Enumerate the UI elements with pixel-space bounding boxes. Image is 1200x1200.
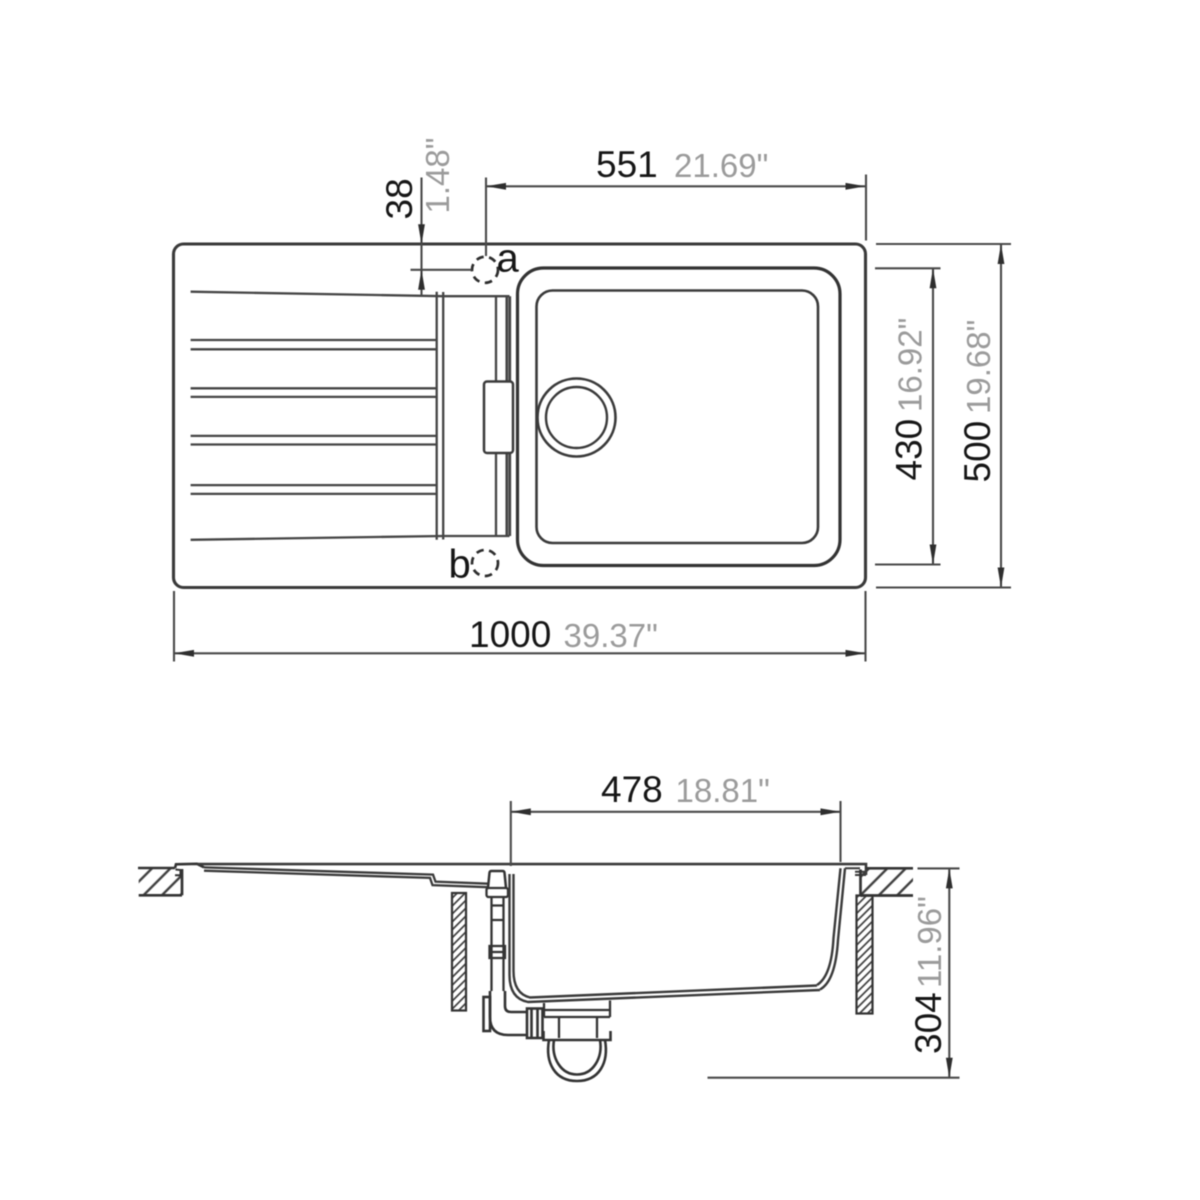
svg-text:39.37": 39.37" [564,617,658,654]
svg-text:500: 500 [957,421,998,483]
svg-text:19.68": 19.68" [960,320,997,414]
svg-text:16.92": 16.92" [892,318,929,412]
svg-text:18.81": 18.81" [676,772,770,809]
svg-text:38: 38 [379,178,420,219]
svg-text:1000: 1000 [469,614,551,655]
svg-text:a: a [497,237,520,281]
svg-text:304: 304 [908,992,949,1054]
svg-text:21.69": 21.69" [674,147,768,184]
svg-text:478: 478 [601,769,663,810]
svg-text:b: b [449,543,471,587]
svg-text:1.48": 1.48" [419,138,456,214]
svg-text:551: 551 [596,144,658,185]
svg-text:430: 430 [889,419,930,481]
svg-text:11.96": 11.96" [911,896,948,988]
